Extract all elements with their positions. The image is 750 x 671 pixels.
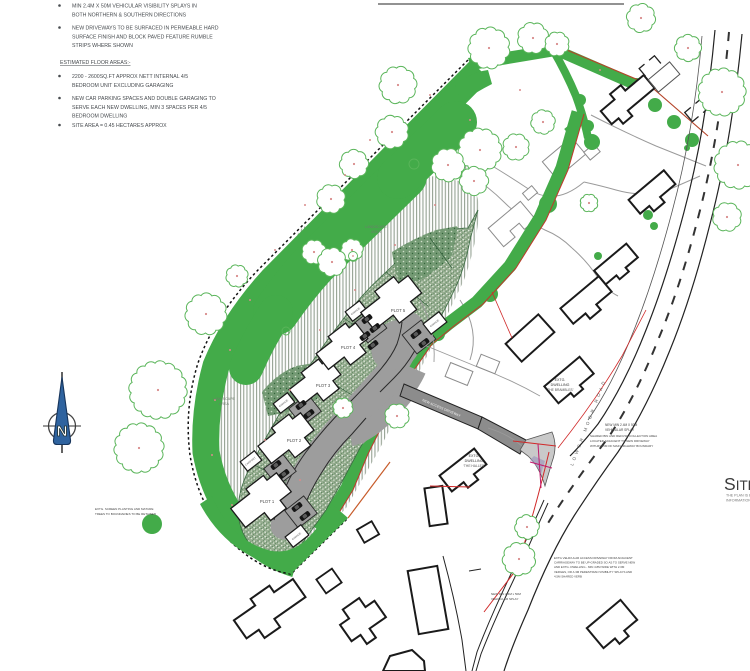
svg-text:THE PLAN IS BASED UPON ORDNANC: THE PLAN IS BASED UPON ORDNANCE SURVEY	[726, 494, 750, 498]
svg-text:‘THE BRAMBLES’: ‘THE BRAMBLES’	[547, 388, 574, 392]
svg-text:EXTG.: EXTG.	[555, 378, 566, 382]
svg-text:NEW DRIVEWAYS TO BE SURFACED I: NEW DRIVEWAYS TO BE SURFACED IN PERMEABL…	[72, 26, 219, 32]
svg-text:SITE AREA = 0.45 HECTARES APPR: SITE AREA = 0.45 HECTARES APPROX	[72, 123, 167, 129]
svg-text:DWELLING: DWELLING	[551, 383, 570, 387]
svg-text:BEDROOM DWELLING: BEDROOM DWELLING	[72, 114, 127, 120]
svg-text:EXTG. SCREEN PLANTING AND MATU: EXTG. SCREEN PLANTING AND MATURE	[95, 507, 153, 511]
svg-text:AREA: AREA	[219, 402, 229, 406]
svg-text:LANDSCAPE: LANDSCAPE	[213, 397, 235, 401]
svg-text:NEW MIN 2.4M x 50M: NEW MIN 2.4M x 50M	[491, 592, 521, 596]
svg-text:2200 - 2600SQ.FT APPROX NETT I: 2200 - 2600SQ.FT APPROX NETT INTERNAL 4/…	[72, 74, 188, 80]
svg-text:DWELLING: DWELLING	[465, 459, 484, 463]
svg-text:PLOT 4: PLOT 4	[341, 345, 356, 350]
svg-text:PLOT 1: PLOT 1	[260, 499, 275, 504]
svg-text:ESTIMATED FLOOR AREAS:-: ESTIMATED FLOOR AREAS:-	[60, 60, 131, 66]
svg-text:WITHIN 25M OF MAIN HIGHWAY BOU: WITHIN 25M OF MAIN HIGHWAY BOUNDARY	[590, 444, 653, 448]
svg-text:STRIPS WHERE SHOWN: STRIPS WHERE SHOWN	[72, 43, 133, 49]
svg-text:AND EXTG. DWELLING - MIN 4.8M: AND EXTG. DWELLING - MIN 4.8M WIDE WITH …	[554, 565, 625, 569]
svg-text:LOCATED ADJACENT TO NEW DRIVEW: LOCATED ADJACENT TO NEW DRIVEWAY	[590, 439, 650, 443]
svg-text:NEW CAR PARKING SPACES AND DOU: NEW CAR PARKING SPACES AND DOUBLE GARAGI…	[72, 96, 216, 102]
svg-text:AREA: AREA	[371, 230, 381, 234]
svg-text:SHARED BIN AND REFUSE COLLECTI: SHARED BIN AND REFUSE COLLECTION AREA	[590, 434, 657, 438]
svg-text:EXTG VEHICULAR ACCESS DRIVEWAY: EXTG VEHICULAR ACCESS DRIVEWAY FROM ADJA…	[554, 556, 633, 560]
svg-text:INFORMATION AND SITE SURVEY DA: INFORMATION AND SITE SURVEY DATA AND IS	[726, 499, 750, 503]
svg-text:VEHICULAR SPLAY: VEHICULAR SPLAY	[491, 597, 518, 601]
svg-text:MIN 2.4M X 50M VEHICULAR VISIB: MIN 2.4M X 50M VEHICULAR VISIBILITY SPLA…	[72, 4, 197, 10]
svg-text:NEW MIN 2.4M X 50M: NEW MIN 2.4M X 50M	[605, 423, 638, 427]
svg-text:LANDSCAPE: LANDSCAPE	[365, 225, 387, 229]
svg-text:PLOT 2: PLOT 2	[287, 438, 302, 443]
svg-text:4.5M SHARED VERB: 4.5M SHARED VERB	[554, 574, 582, 578]
svg-text:VEHICULAR SPLAY: VEHICULAR SPLAY	[605, 428, 635, 432]
svg-text:N: N	[57, 423, 68, 440]
svg-text:SURFACE FINISH AND BLOCK PAVED: SURFACE FINISH AND BLOCK PAVED FEATURE R…	[72, 35, 213, 41]
svg-text:‘THE HALLES’: ‘THE HALLES’	[463, 464, 485, 468]
svg-text:CARRIAGEWAY TO BE UP-GRADED SO: CARRIAGEWAY TO BE UP-GRADED SO AS TO SER…	[554, 561, 635, 565]
svg-text:SERVE EACH NEW DWELLING, MIN 3: SERVE EACH NEW DWELLING, MIN 3 SPACES PE…	[72, 105, 207, 111]
svg-text:EXTG.: EXTG.	[469, 454, 480, 458]
svg-text:BOTH NORTHERN & SOUTHERN DIREC: BOTH NORTHERN & SOUTHERN DIRECTIONS	[72, 13, 187, 19]
svg-text:TREES TO BOUNDARIES TO BE RETA: TREES TO BOUNDARIES TO BE RETAINED	[95, 512, 157, 516]
svg-text:PLOT 3: PLOT 3	[316, 383, 331, 388]
svg-text:PLOT 5: PLOT 5	[391, 308, 406, 313]
svg-text:BEDROOM UNIT EXCLUDING GARAGIN: BEDROOM UNIT EXCLUDING GARAGING	[72, 83, 173, 89]
svg-text:VERGES, OR A 3M PEDESTRIAN VIS: VERGES, OR A 3M PEDESTRIAN VISIBILITY SP…	[554, 570, 632, 574]
